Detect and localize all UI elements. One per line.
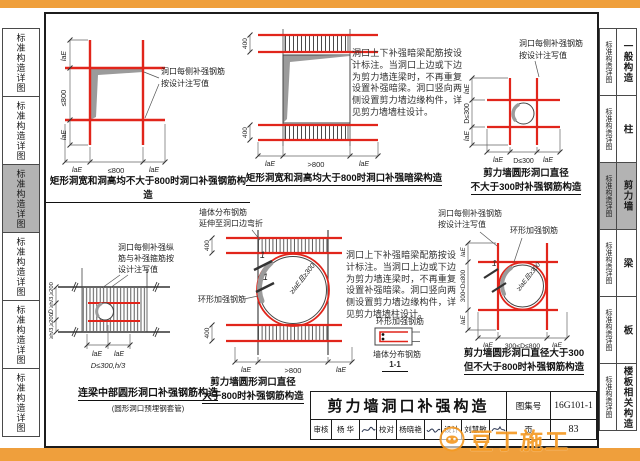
dim-lae: laE [61,130,68,140]
dim-lae: laE [265,161,275,168]
note-beam-line3: 设计注写值 [118,264,158,274]
leader-line [535,61,539,77]
note-concealed-beam-paragraph-2: 洞口上下补强暗梁配筋按设计标注。当洞口上边或下边为剪力墙连梁时，不再重复设置补强… [346,250,456,321]
docin-logo [438,425,466,453]
note-ring-bar: 环形加强钢筋 [198,295,246,306]
right-tab-column-zhu: 标准构造详图 柱 [599,96,637,163]
left-tab-6: 标准构造详图 [2,369,40,437]
left-tab-5: 标准构造详图 [2,301,40,369]
caption-drawing3: 剪力墙圆形洞口直径不大于300时补强钢筋构造 [455,165,597,195]
dim-height: ≤800 [59,90,68,107]
dim-width: >800 [308,160,325,169]
section-label-1-1: 1-1 [382,360,408,372]
opening-outline [283,55,350,123]
stirrup-hatch-top [258,239,328,252]
top-orange-band [0,0,640,8]
dimension-lines [65,40,165,162]
dim-lae: laE [336,367,346,374]
left-tab-4: 标准构造详图 [2,233,40,301]
stirrup-hatch-bottom [258,326,328,340]
left-tab-label: 标准构造详图 [15,33,28,93]
check-name: 杨晓艳 [396,419,424,439]
right-tab-sublabel: 标准构造详图 [603,108,613,150]
dim-lae: laE [241,367,251,374]
left-tab-label: 标准构造详图 [15,373,28,433]
atlas-no-value: 16G101-1 [550,392,596,419]
right-tab-category: 板 [620,325,634,336]
left-tab-label: 标准构造详图 [15,237,28,297]
review-name: 杨 华 [331,419,359,439]
note-ring-bar: 环形加强钢筋 [510,226,558,237]
note-side-bars-line2: 按设计注写值 [161,78,209,88]
caption-drawing5: 剪力墙圆形洞口直径大于800时补强钢筋构造 [192,374,314,404]
review-signature [359,419,376,439]
dim-diameter: D≤300 [464,103,471,124]
atlas-page: { "tabs": { "side_label": "标准构造详图", "rig… [0,0,640,461]
leader-lines [480,232,522,262]
left-tab-3-active: 标准构造详图 [2,165,40,233]
watermark: 豆丁施工 [438,422,570,456]
stirrup-hatch-bottom [285,126,348,139]
dim-d: D [48,309,55,314]
dim-edge: ≥h/3,≥200 [49,313,55,339]
left-tab-label: 标准构造详图 [15,169,28,229]
dim-lae: laE [114,351,124,358]
right-tab-category: 柱 [620,124,634,135]
dim-diameter: D≤300 [513,158,534,165]
dim-lae: laE [543,157,553,164]
caption-drawing4-sub: (圆形洞口预埋钢套管) [46,403,250,414]
note-wall-dist: 墙体分布钢筋延伸至洞口边弯折 [199,208,263,229]
right-tab-sublabel: 标准构造详图 [603,242,613,284]
right-tab-sublabel: 标准构造详图 [603,309,613,351]
right-tab-slab: 标准构造详图 板 [599,297,637,364]
right-tab-general: 标准构造详图 一般构造 [599,28,637,96]
dim-diameter: 300<D≤800 [460,269,467,302]
right-tab-floor-related: 标准构造详图 楼板相关构造 [599,364,637,431]
right-tab-column: 标准构造详图 一般构造 标准构造详图 柱 标准构造详图 剪力墙 标准构造详图 梁… [599,28,637,431]
note-side-bars-line1: 洞口每侧补强钢筋 [161,66,225,76]
right-tab-category: 剪力墙 [620,180,634,212]
dim-400: 400 [204,240,211,251]
note-beam-line1: 洞口每侧补强纵 [118,242,174,252]
note-side-bars: 洞口每侧补强钢筋按设计注写值 [438,209,502,230]
watermark-text: 豆丁施工 [470,422,570,456]
leader-line [144,72,159,118]
section-bar-dot [382,338,385,341]
dim-lae: laE [464,131,471,141]
check-label: 校对 [376,419,396,439]
review-label: 审核 [311,419,331,439]
left-tab-column: 标准构造详图 标准构造详图 标准构造详图 标准构造详图 标准构造详图 标准构造详… [2,28,40,437]
caption-drawing6: 剪力墙圆形洞口直径大于300但不大于800时补强钢筋构造 [452,345,596,375]
left-tab-label: 标准构造详图 [15,305,28,365]
note-side-bars-line2: 按设计注写值 [519,50,567,60]
section-mark-1: 1 [260,250,265,260]
reinforcement-bars-vertical [90,40,143,145]
dim-lae: laE [460,247,467,257]
section-mark-1: 1 [492,258,497,268]
section-mark-1: 1 [263,272,268,282]
dim-400: 400 [204,327,211,338]
dim-lae: laE [61,51,68,61]
note-ring-bar-section: 环形加强钢筋 [376,317,424,328]
atlas-no-label: 图集号 [506,392,550,419]
section-dist-bars [412,332,420,342]
dim-opening: D≤300,h/3 [91,361,126,370]
left-tab-1: 标准构造详图 [2,28,40,97]
stirrup-hatch [82,288,147,331]
dim-400: 400 [242,38,249,49]
dim-lae: laE [493,157,503,164]
note-beam-line2: 筋与补强箍筋按 [118,253,174,263]
right-tab-shearwall-active: 标准构造详图 剪力墙 [599,163,637,230]
dim-lae: laE [460,315,467,325]
caption-drawing1: 矩形洞宽和洞高均不大于800时洞口补强钢筋构造 [46,173,250,203]
right-tab-sublabel: 标准构造详图 [603,175,613,217]
right-tab-category: 梁 [620,258,634,269]
reinforcement-bars-horizontal [65,68,165,120]
note-concealed-beam-paragraph: 洞口上下补强暗梁配筋按设计标注。当洞口上边或下边为剪力墙连梁时，不再重复设置补强… [352,48,462,119]
leader-lines [102,275,128,288]
note-side-bars-line1: 洞口每侧补强钢筋 [519,38,583,48]
right-tab-category: 楼板相关构造 [620,366,634,429]
sheet-title: 剪力墙洞口补强构造 [311,392,506,419]
right-tab-beam: 标准构造详图 梁 [599,230,637,297]
dim-edge: ≥h/3,≥200 [49,282,55,308]
dim-400: 400 [242,127,249,138]
right-tab-sublabel: 标准构造详图 [603,376,613,418]
right-tab-category: 一般构造 [620,41,634,83]
dim-lae: laE [464,84,471,94]
left-tab-2: 标准构造详图 [2,97,40,165]
section-bar-dot [382,333,385,336]
dim-lae: laE [92,351,102,358]
right-tab-sublabel: 标准构造详图 [603,41,613,83]
note-wall-dist-section: 墙体分布钢筋 [373,350,421,361]
dim-lae: laE [359,161,369,168]
stirrup-hatch-top [285,36,348,51]
signature-scribble [361,424,376,436]
wall-shading [283,55,350,123]
left-tab-label: 标准构造详图 [15,101,28,161]
caption-drawing2: 矩形洞宽和洞高均大于800时洞口补强暗梁构造 [238,170,450,186]
wall-shading [90,68,143,120]
